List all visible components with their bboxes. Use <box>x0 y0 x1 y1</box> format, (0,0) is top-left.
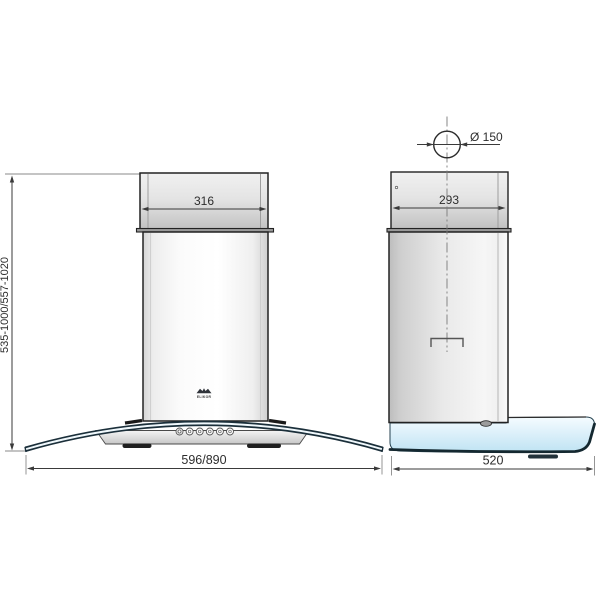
arrowhead-right <box>427 142 434 146</box>
side-body <box>389 232 508 423</box>
cooker-hood-dimension-drawing: 316 ELIKOR <box>0 0 600 600</box>
control-button <box>206 428 213 435</box>
control-button <box>216 428 223 435</box>
drawing-svg: 316 ELIKOR <box>0 0 600 600</box>
screw-hole <box>395 186 397 188</box>
chimney-depth-label: 293 <box>439 193 459 207</box>
control-button <box>186 428 193 435</box>
dimension-height-range: 535-1000/557-1020 <box>0 176 14 451</box>
brand-logo-text: ELIKOR <box>197 395 212 399</box>
glass-underside-strip <box>528 455 558 459</box>
dimension-body-width: 596/890 <box>26 453 382 475</box>
body-width-label: 596/890 <box>181 453 226 467</box>
side-view: 293 Ø 150 520 <box>387 117 595 476</box>
arrowhead-left <box>393 467 400 471</box>
arrowhead-right <box>587 467 594 471</box>
glass-tip-left <box>25 447 26 452</box>
control-button-power <box>176 428 183 435</box>
duct-diameter-label: Ø 150 <box>470 130 503 144</box>
canopy-tab-right <box>269 421 286 424</box>
height-range-label: 535-1000/557-1020 <box>0 257 11 353</box>
arrowhead-right <box>374 466 381 470</box>
glass-tip-right <box>382 447 383 452</box>
arrowhead-up <box>10 176 14 183</box>
body-depth-label: 520 <box>483 454 504 468</box>
arrowhead-left <box>27 466 34 470</box>
front-view: 316 ELIKOR <box>0 173 383 475</box>
duct-outlet-callout: Ø 150 <box>417 130 503 158</box>
lamp-strip-right <box>247 444 281 449</box>
arrowhead-left <box>460 142 467 146</box>
damper-knob <box>481 421 492 427</box>
control-button-light <box>227 428 234 435</box>
canopy-tab-left <box>125 421 142 424</box>
glass-top-edge <box>506 417 586 418</box>
control-button <box>196 428 203 435</box>
lamp-strip-left <box>123 444 152 449</box>
chimney-width-label: 316 <box>194 194 214 208</box>
arrowhead-down <box>10 444 14 451</box>
dimension-body-depth: 520 <box>392 454 595 476</box>
